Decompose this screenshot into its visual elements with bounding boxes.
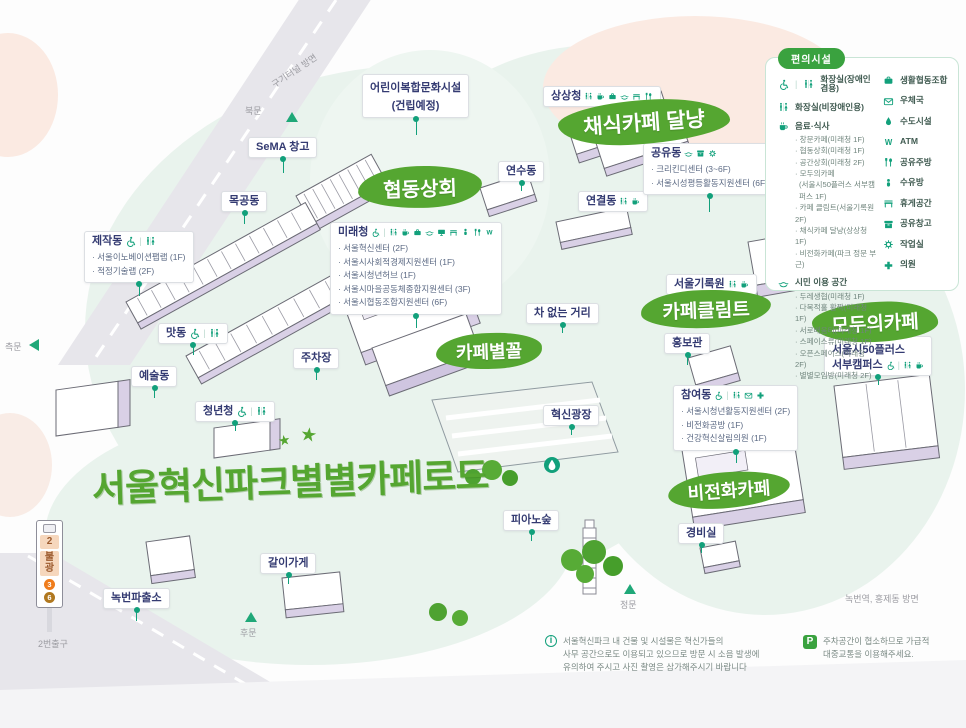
subway-exit-sign: 2 불 광 3 6 (36, 520, 63, 608)
direction-exit2: 2번출구 (38, 637, 68, 650)
label-cheongnyeoncheong: 청년청 | (195, 401, 275, 422)
box-icon (883, 219, 894, 230)
station-name: 불 광 (40, 551, 59, 576)
legend-item-shared-kitchen: 공유주방 (883, 157, 950, 168)
park-map: 구기터널 방면 북문 측문 후문 정문 녹번역, 홍제동 방면 2번출구 2 불… (0, 0, 966, 728)
atm-icon (883, 137, 894, 148)
direction-north-gate: 북문 (245, 104, 262, 117)
coffee-icon (631, 197, 640, 206)
wheelchair-icon (125, 236, 136, 247)
direction-side-gate: 측문 (5, 340, 22, 353)
coffee-icon (401, 228, 410, 237)
label-jejakdong: 제작동 | · 서울이노베이션팹랩 (1F) · 적정기술랩 (2F) (84, 231, 194, 283)
bag-icon (608, 92, 617, 101)
restroom-icon (728, 280, 737, 289)
legend-item-toilet-accessible: | 화장실(장애인 겸용) (778, 75, 877, 94)
restroom-icon (145, 236, 156, 247)
legend-panel: 편의시설 | 화장실(장애인 겸용) 화장실(비장애인용) 음료·식사 (765, 57, 959, 291)
atm-icon (485, 228, 494, 237)
restroom-icon (778, 102, 789, 113)
label-matdong: 맛동 | (158, 323, 228, 344)
legend-item-water: 수도시설 (883, 116, 950, 127)
train-icon (43, 524, 56, 533)
star-doodle: ★ (298, 423, 318, 448)
restroom-icon (256, 406, 267, 417)
wheelchair-icon (236, 406, 247, 417)
subway-line6-badge: 6 (44, 592, 55, 603)
info-icon: i (545, 635, 557, 647)
restroom-icon (584, 92, 593, 101)
label-sema-warehouse: SeMA 창고 (248, 137, 317, 158)
parking-icon: P (803, 635, 817, 649)
bench-icon (449, 228, 458, 237)
restroom-icon (803, 79, 814, 90)
label-nokbeon-police: 녹번파출소 (103, 588, 170, 609)
label-carfree-street: 차 없는 거리 (526, 303, 599, 324)
hands-icon (684, 149, 693, 158)
exit-number: 2 (40, 535, 59, 549)
utensils-icon (473, 228, 482, 237)
post-icon (744, 391, 753, 400)
legend-item-citizen-space: 시민 이용 공간 (778, 278, 877, 289)
coffee-icon (740, 280, 749, 289)
bench-icon (883, 198, 894, 209)
baby-icon (461, 228, 470, 237)
gear-icon (883, 239, 894, 250)
restroom-icon (619, 197, 628, 206)
legend-item-shared-storage: 공유창고 (883, 219, 950, 230)
label-yeonsudong: 연수동 (498, 161, 544, 182)
label-mokgongdong: 목공동 (221, 191, 267, 212)
legend-item-nursing-room: 수유방 (883, 178, 950, 189)
legend-title: 편의시설 (778, 48, 845, 69)
plus-icon (756, 391, 765, 400)
restroom-icon (732, 391, 741, 400)
direction-main-gate: 정문 (620, 598, 637, 611)
label-hongbogwan: 홍보관 (664, 333, 710, 354)
star-doodle: ★ (277, 431, 292, 450)
legend-citizen-list: · 두레생협(미래청 1F) · 다목적홀 활짝(미래청 1F) · 서로배움터… (795, 291, 877, 382)
north-gate-triangle (286, 112, 298, 122)
monitor-icon (437, 228, 446, 237)
label-innovation-plaza: 혁신광장 (543, 405, 599, 426)
side-gate-triangle (29, 339, 39, 351)
legend-item-workshop: 작업실 (883, 239, 950, 250)
utensils-icon (883, 157, 894, 168)
label-gongyudong: 공유동 · 크리킨디센터 (3~6F) · 서울시성평등활동지원센터 (6F) (643, 143, 776, 195)
label-yeongyeoldong: 연결동 (578, 191, 648, 212)
wheelchair-icon (714, 391, 723, 400)
rear-gate-triangle (245, 612, 257, 622)
wheelchair-icon (778, 79, 789, 90)
main-gate-triangle (624, 584, 636, 594)
plus-icon (883, 260, 894, 271)
visitor-notice: i 서울혁신파크 내 건물 및 시설물은 혁신가들의 사무 공간으로도 이용되고… (545, 635, 759, 675)
box-icon (696, 149, 705, 158)
label-yesuldong: 예술동 (131, 366, 177, 387)
label-piano-forest: 피아노숲 (503, 510, 559, 531)
label-gari-shop: 갈이가게 (260, 553, 316, 574)
legend-food-list: · 창문카페(미래청 1F) · 협동상회(미래청 1F) · 공간상회(미래청… (795, 134, 877, 271)
legend-item-atm: ATM (883, 137, 950, 148)
legend-item-food: 음료·식사 (778, 121, 877, 132)
label-children-facility: 어린이복합문화시설 (건립예정) (362, 74, 469, 118)
label-miraecheong: 미래청 | · 서울혁신센터 (2F) · 서울시사회적경제지원센터 (1F) … (330, 222, 502, 315)
direction-rear-gate: 후문 (240, 626, 257, 639)
coffee-icon (596, 92, 605, 101)
legend-item-rest-area: 휴게공간 (883, 198, 950, 209)
bag-icon (883, 75, 894, 86)
gear-icon (708, 149, 717, 158)
bag-icon (413, 228, 422, 237)
legend-item-coop: 생활협동조합 (883, 75, 950, 86)
legend-item-toilet: 화장실(비장애인용) (778, 102, 877, 113)
hands-icon (425, 228, 434, 237)
wheelchair-icon (189, 328, 200, 339)
hands-icon (620, 92, 629, 101)
restroom-icon (209, 328, 220, 339)
parking-notice: P 주차공간이 협소하므로 가급적 대중교통을 이용해주세요. (803, 635, 929, 661)
hands-icon (778, 278, 789, 289)
baby-icon (883, 178, 894, 189)
subway-line3-badge: 3 (44, 579, 55, 590)
drop-icon (883, 116, 894, 127)
wheelchair-icon (371, 228, 380, 237)
post-icon (883, 96, 894, 107)
label-parking-lot: 주차장 (293, 348, 339, 369)
legend-item-post-office: 우체국 (883, 96, 950, 107)
restroom-icon (389, 228, 398, 237)
label-chamyeodong: 참여동 | · 서울시청년활동지원센터 (2F) · 비전화공방 (1F) · … (673, 385, 798, 451)
label-gyeongbisil: 경비실 (678, 523, 724, 544)
direction-nokbeon: 녹번역, 홍제동 방면 (845, 592, 919, 605)
legend-item-clinic: 의원 (883, 260, 950, 271)
sign-pole (47, 608, 52, 632)
coffee-icon (778, 121, 789, 132)
